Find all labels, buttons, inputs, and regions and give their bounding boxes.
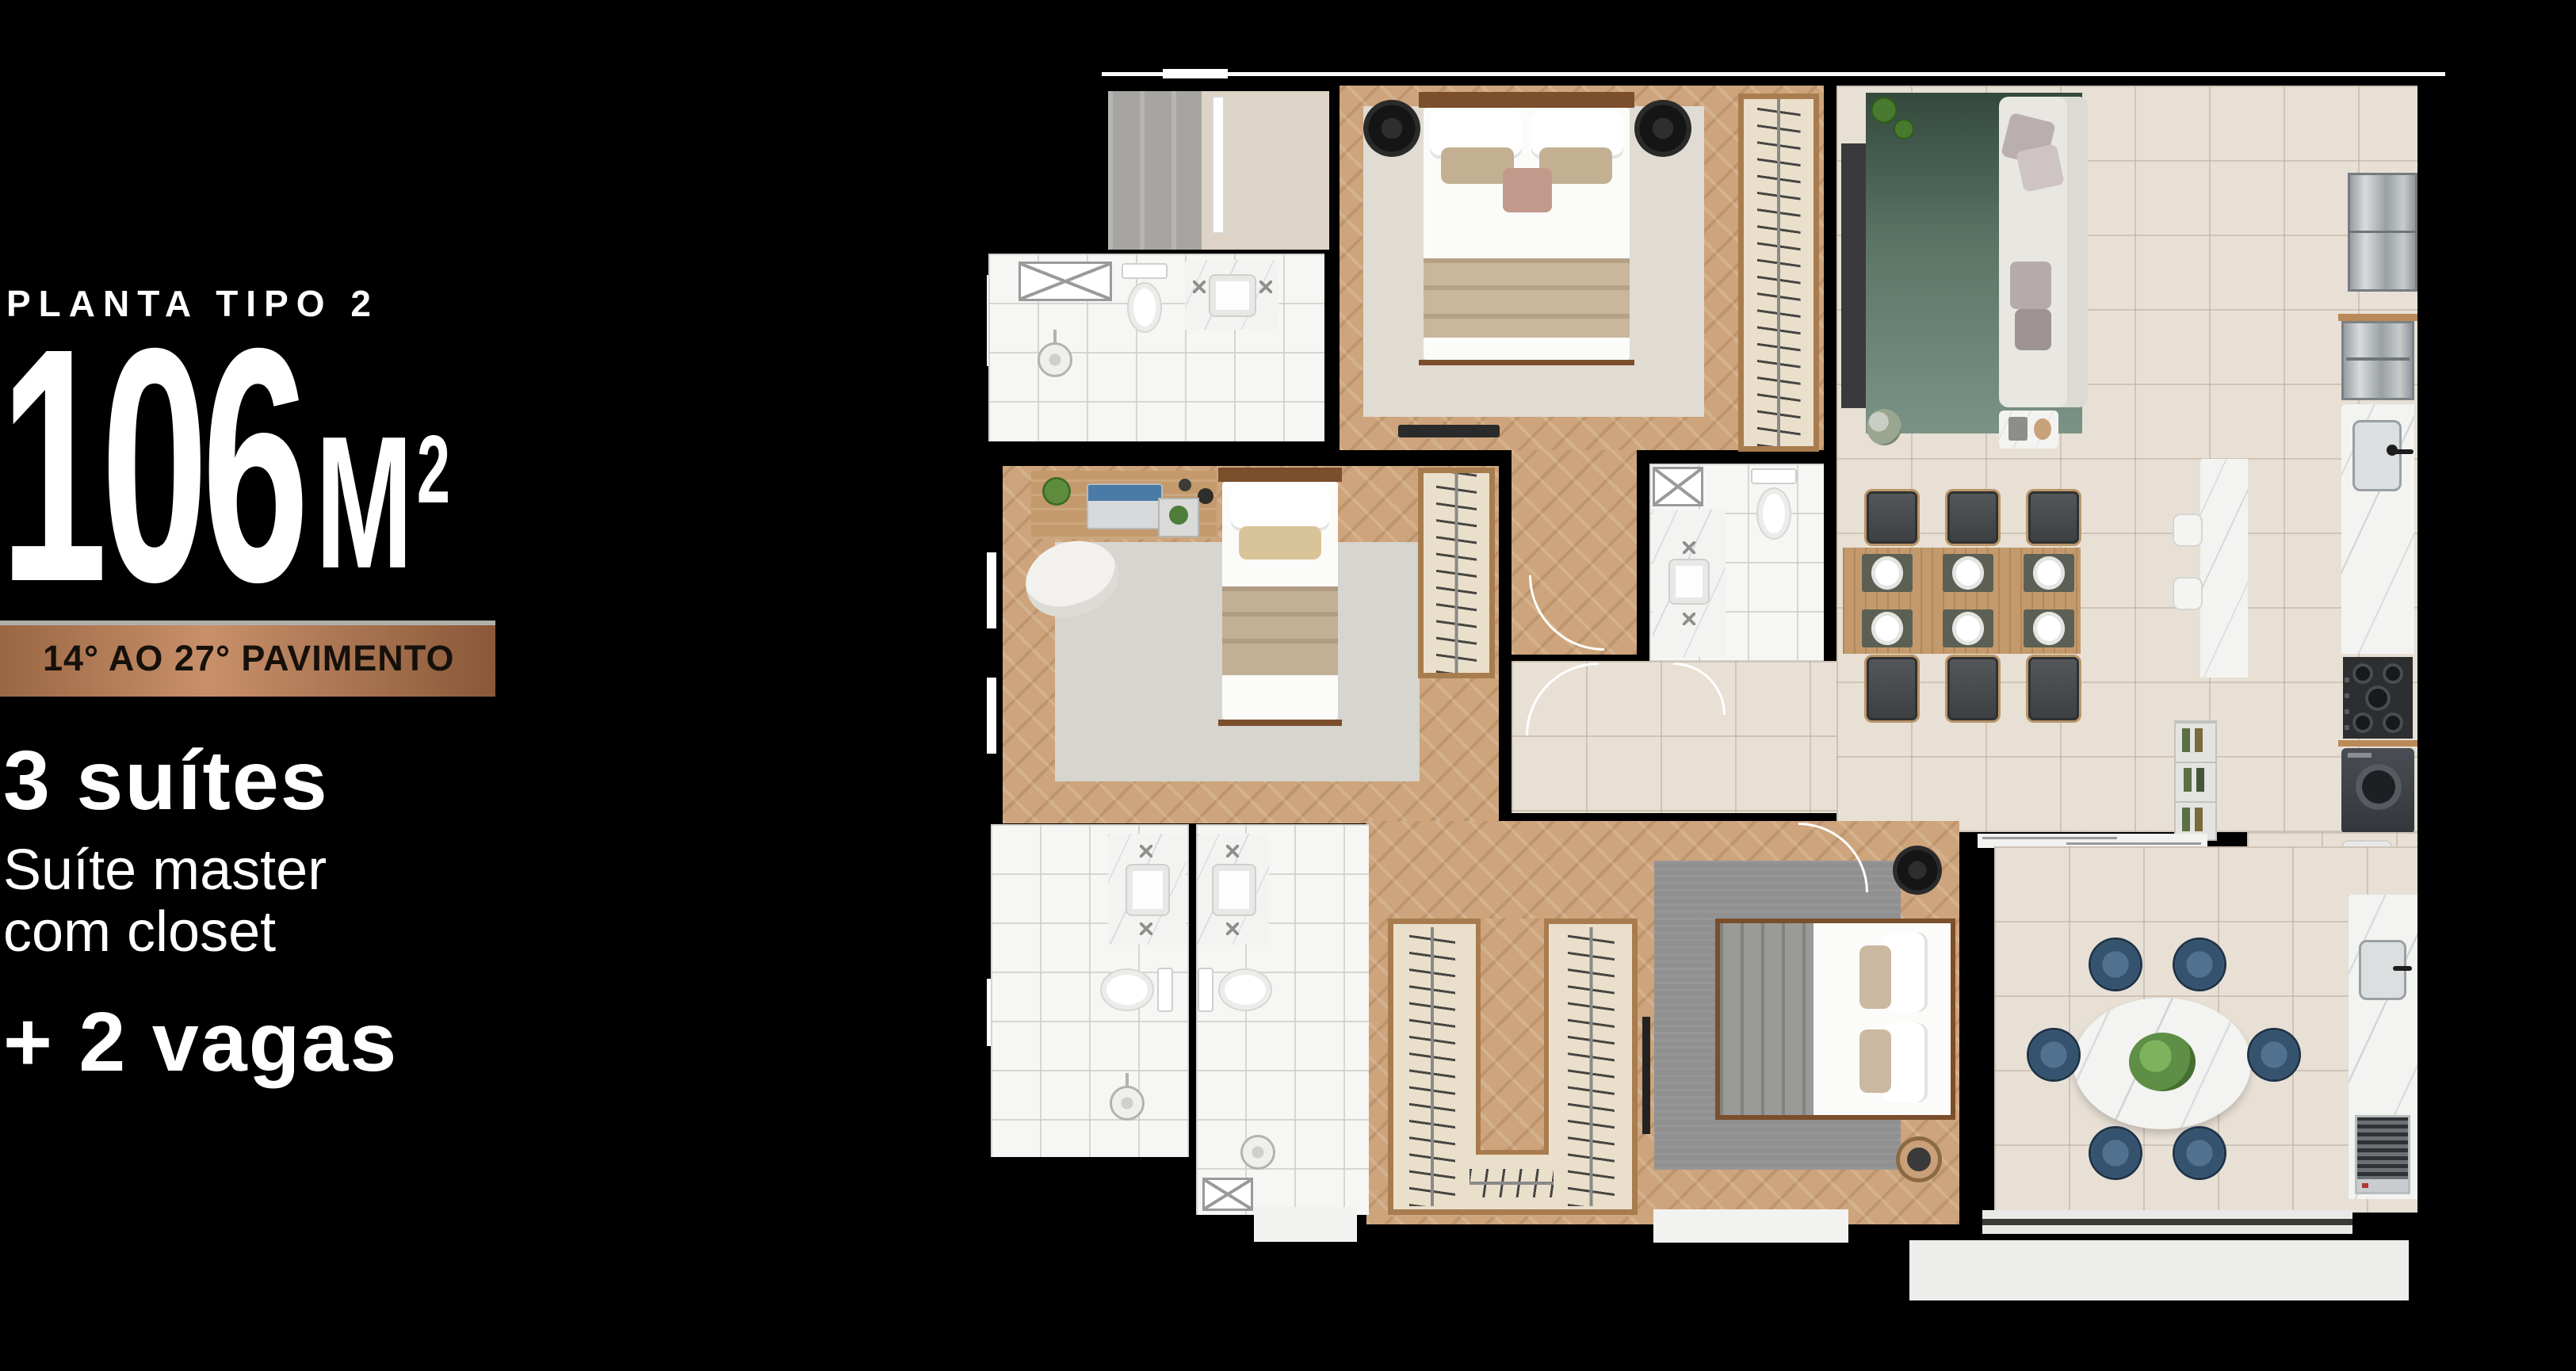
wardrobe — [1418, 468, 1495, 678]
dining-chair — [2028, 491, 2079, 544]
stool — [2173, 577, 2203, 610]
toilet — [1751, 468, 1797, 548]
door-swing — [1529, 575, 1604, 651]
feature-parking: + 2 vagas — [3, 1000, 398, 1084]
ventilation-shaft — [1653, 467, 1703, 506]
cup — [1179, 479, 1191, 491]
master-bathroom-1 — [991, 824, 1189, 1157]
centerpiece-plant — [2129, 1033, 2196, 1091]
desk-frame-plant — [1158, 498, 1199, 537]
feature-master-line2: com closet — [3, 903, 276, 960]
balcony-railing — [1982, 1210, 2352, 1234]
shower-head — [1240, 1135, 1275, 1170]
sofa — [1999, 97, 2088, 407]
shower-head — [1038, 342, 1072, 377]
wine-rack — [2174, 720, 2217, 841]
area-value: 106 — [0, 346, 303, 586]
faucet — [2393, 966, 2412, 971]
area-unit: M 2 — [315, 434, 450, 572]
balcony-table — [2073, 998, 2251, 1129]
top-wall-line — [1102, 72, 2445, 76]
feature-suites: 3 suítes — [3, 739, 329, 823]
bathroom-window — [1202, 1178, 1253, 1211]
master-closet — [1388, 918, 1638, 1215]
footboard — [1218, 720, 1342, 726]
balcony-chair — [2175, 1128, 2224, 1178]
counter-shelf — [2338, 314, 2417, 321]
master-suite — [1366, 821, 1959, 1224]
closet-rail-right — [1554, 927, 1629, 1206]
balcony-chair — [2091, 1128, 2140, 1178]
single-bed — [1218, 468, 1342, 726]
door-swing — [1526, 663, 1599, 735]
side-table-wood — [1896, 1136, 1942, 1182]
dining-chair — [2028, 657, 2079, 720]
window-sill — [1653, 1209, 1848, 1243]
balcony-sink — [2359, 940, 2406, 1000]
barbecue-grill — [2355, 1115, 2410, 1194]
sofa-cushion — [2015, 309, 2051, 350]
balcony-chair — [2091, 940, 2140, 989]
floor-range-text: 14° AO 27° PAVIMENTO — [0, 638, 454, 679]
closet-rail-bottom — [1470, 1160, 1554, 1206]
kitchen-sink — [2352, 420, 2402, 491]
window-sill — [1254, 1207, 1357, 1242]
window-left-2 — [987, 552, 996, 628]
accent-pillow — [1859, 945, 1891, 1009]
headboard — [1218, 468, 1342, 482]
master-bathroom-2 — [1196, 824, 1369, 1215]
washing-machine — [2341, 748, 2414, 834]
closet-rail-left — [1395, 927, 1470, 1206]
toilet — [1122, 263, 1168, 339]
floor-plan — [987, 67, 2469, 1304]
side-table-round — [1893, 846, 1942, 895]
flower-vase — [1867, 409, 1901, 445]
wall-tv — [1642, 1017, 1650, 1134]
accent-pillow — [1239, 526, 1321, 559]
toilet — [1086, 965, 1175, 1014]
living-dining-area — [1836, 86, 2417, 832]
desk-plant — [1042, 477, 1071, 506]
area-unit-letter: M — [315, 434, 413, 572]
suite-3-bathroom — [1649, 464, 1824, 661]
cooktop — [2343, 657, 2413, 739]
area-unit-exponent: 2 — [417, 434, 450, 505]
closet-floor-opening — [1476, 918, 1549, 1155]
balcony-chair — [2029, 1030, 2078, 1079]
hallway — [1512, 661, 1836, 813]
gourmet-balcony — [1994, 846, 2417, 1213]
wardrobe — [1738, 94, 1819, 452]
shower-arm — [1126, 1073, 1129, 1087]
accent-pillow — [1859, 1029, 1891, 1093]
shower-arm — [1053, 330, 1057, 344]
double-bed — [1419, 92, 1634, 365]
info-panel: PLANTA TIPO 2 106 M 2 14° AO 27° PAVIMEN… — [0, 0, 555, 1371]
entry-hall — [1108, 91, 1329, 250]
headboard — [1419, 92, 1634, 108]
nightstand-right — [1634, 100, 1691, 157]
ventilation-shaft — [1019, 262, 1112, 301]
master-bed — [1715, 918, 1955, 1120]
sink-counter — [1185, 260, 1278, 330]
kitchen-island — [2200, 459, 2248, 678]
plant — [1894, 119, 1914, 139]
floor-range-badge: 14° AO 27° PAVIMENTO — [0, 621, 495, 697]
suite-2-entry-nook — [1512, 450, 1637, 655]
dining-chair — [1947, 657, 1998, 720]
refrigerator — [2341, 321, 2414, 400]
suite-2-bedroom — [1340, 86, 1824, 450]
balcony-chair — [2249, 1030, 2299, 1079]
blanket — [1222, 586, 1338, 675]
toilet — [1198, 965, 1286, 1014]
dining-table — [1843, 548, 2081, 654]
plant — [1871, 97, 1898, 124]
pillow — [1231, 485, 1329, 531]
sofa-cushion — [2010, 262, 2051, 309]
dining-chair — [1867, 491, 1917, 544]
laptop — [1087, 483, 1163, 529]
side-table — [1999, 411, 2058, 449]
dining-chair — [1947, 491, 1998, 544]
wall-cabinet — [2348, 173, 2417, 292]
dining-chair — [1867, 657, 1917, 720]
sink-counter — [1198, 834, 1269, 945]
footboard — [1419, 360, 1634, 365]
door-swing — [1673, 663, 1726, 715]
service-door-sill — [1163, 69, 1228, 78]
counter-shelf — [2338, 740, 2417, 747]
entry-door-leaf — [1213, 97, 1223, 232]
sink-counter — [1653, 510, 1726, 657]
shower-head — [1110, 1086, 1145, 1121]
entry-concrete-floor — [1108, 91, 1202, 250]
nightstand-left — [1363, 100, 1420, 157]
stool — [2173, 514, 2203, 547]
tv-console — [1398, 425, 1500, 437]
sofa-cushion — [2016, 143, 2065, 193]
cup — [1198, 488, 1213, 504]
gray-throw — [1720, 923, 1814, 1115]
sink-counter — [1108, 834, 1186, 945]
window-left-3 — [987, 678, 996, 754]
exterior-pad — [1909, 1240, 2409, 1300]
suite-2-bathroom — [988, 254, 1324, 441]
balcony-chair — [2175, 940, 2224, 989]
suite-3-bedroom — [1003, 466, 1499, 823]
faucet-base — [2387, 445, 2398, 456]
accent-pillow-small — [1503, 168, 1552, 212]
dining-set — [1836, 473, 2084, 790]
blanket — [1424, 258, 1630, 338]
feature-master-line1: Suíte master — [3, 842, 327, 899]
door-swing — [1798, 823, 1868, 892]
